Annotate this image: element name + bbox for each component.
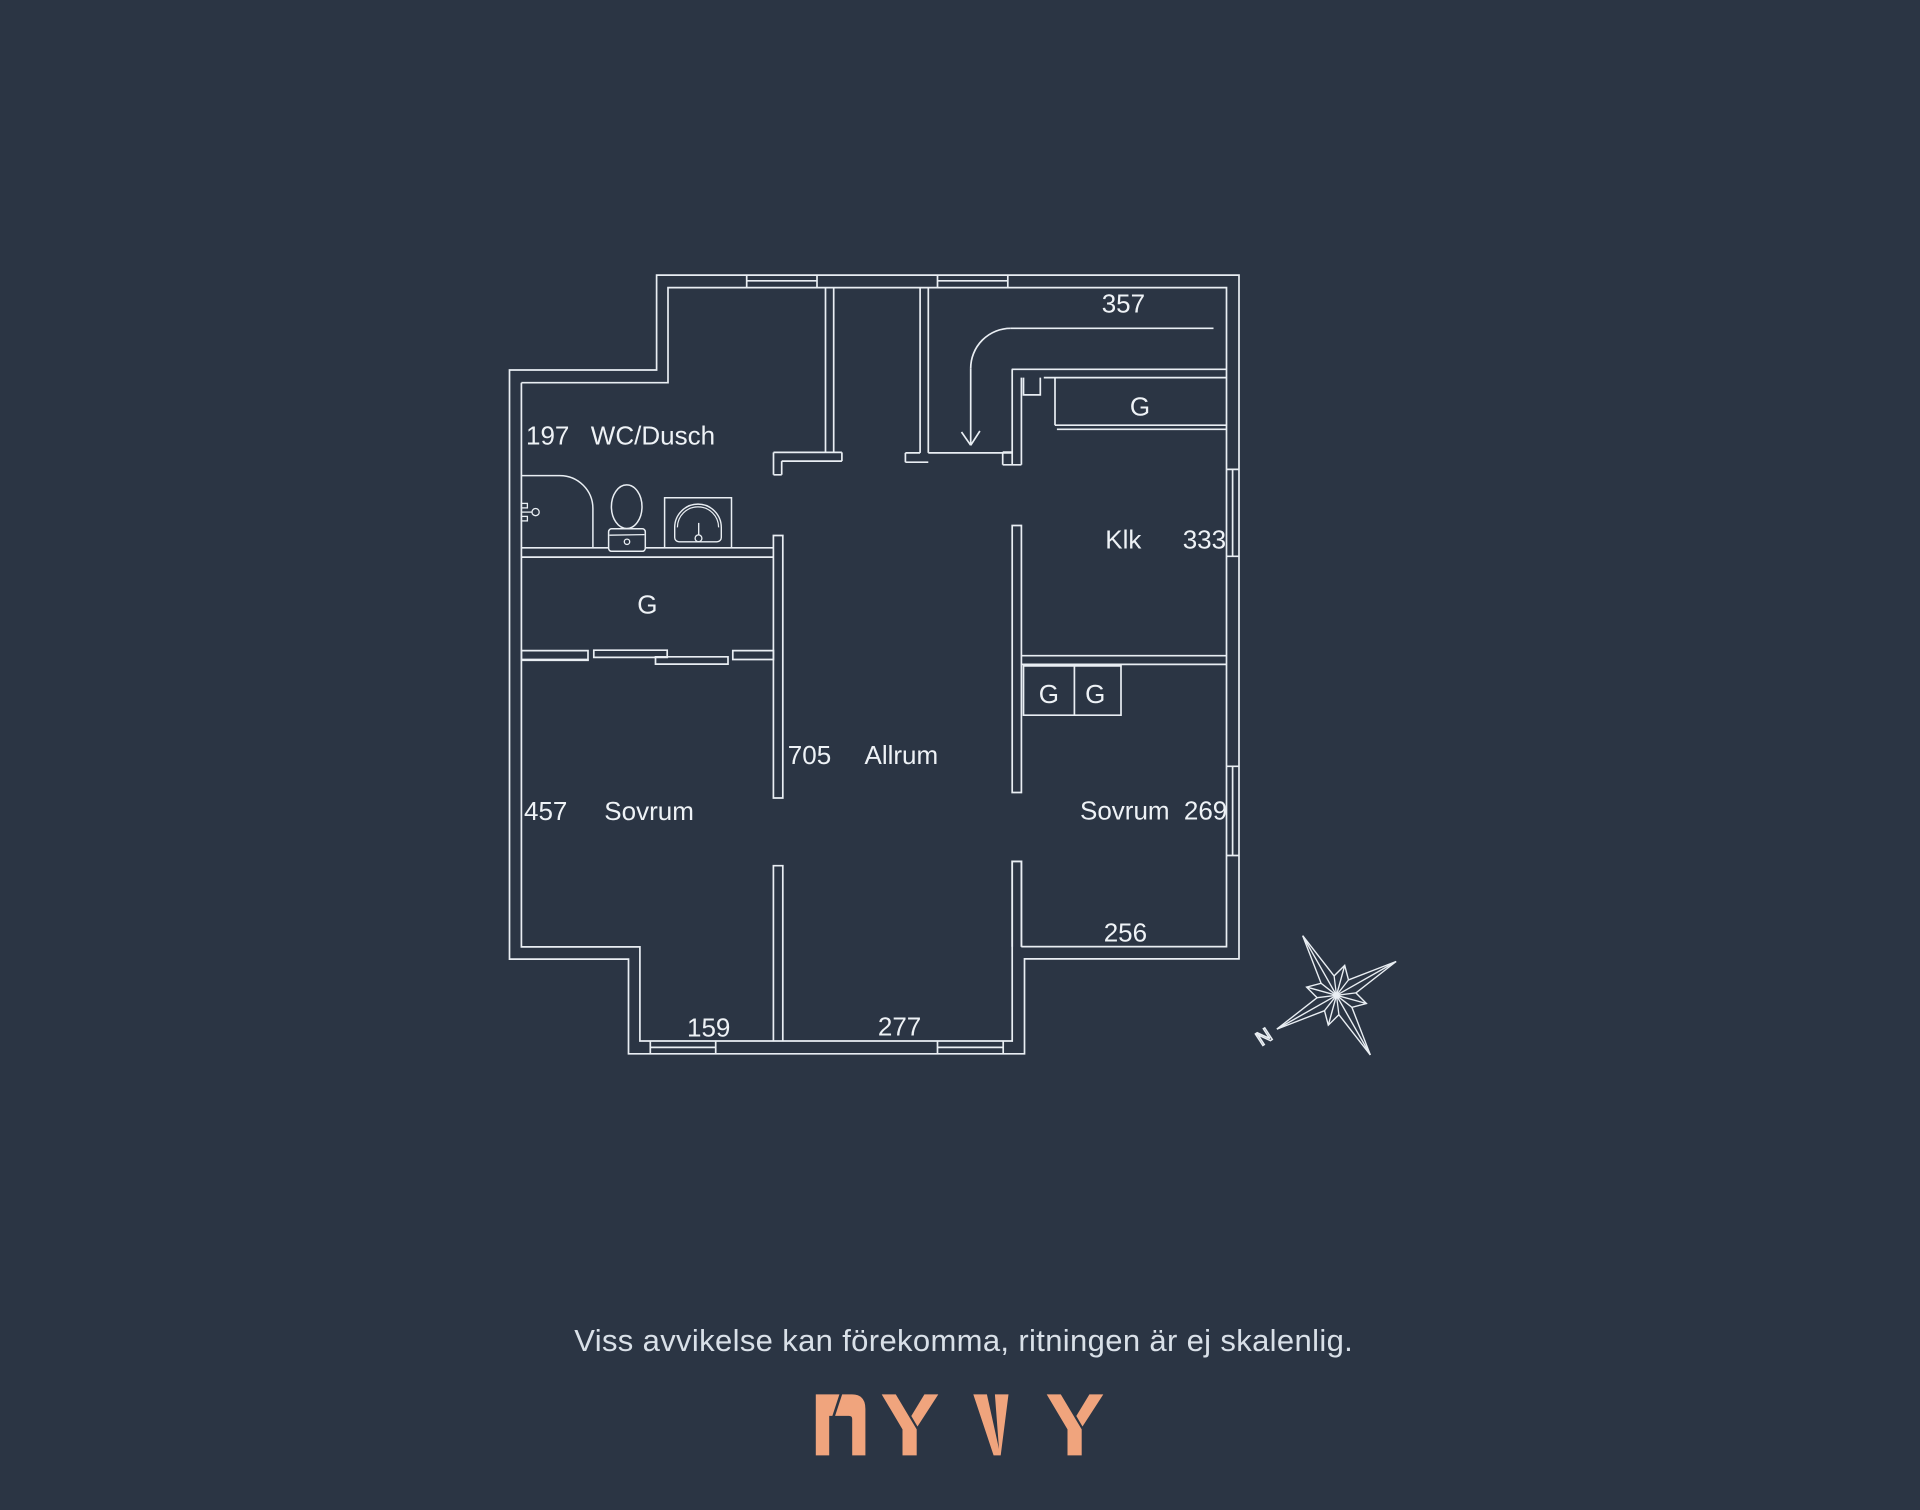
svg-text:Klk: Klk: [1105, 525, 1142, 555]
svg-text:357: 357: [1102, 289, 1145, 319]
svg-text:159: 159: [687, 1013, 730, 1043]
svg-text:Viss avvikelse kan förekomma,: Viss avvikelse kan förekomma, ritningen …: [574, 1323, 1353, 1358]
svg-text:N: N: [1252, 1024, 1276, 1050]
svg-text:G: G: [1130, 392, 1150, 422]
svg-text:277: 277: [878, 1011, 921, 1041]
svg-text:705: 705: [788, 740, 831, 770]
svg-text:256: 256: [1104, 918, 1147, 948]
svg-text:333: 333: [1183, 525, 1226, 555]
svg-text:457: 457: [524, 796, 567, 826]
svg-text:Allrum: Allrum: [865, 740, 939, 770]
svg-text:Sovrum: Sovrum: [1080, 796, 1170, 826]
svg-text:Sovrum: Sovrum: [604, 796, 694, 826]
svg-text:197: 197: [526, 420, 569, 450]
svg-text:G: G: [1039, 679, 1059, 709]
svg-text:269: 269: [1184, 796, 1227, 826]
svg-text:WC/Dusch: WC/Dusch: [591, 420, 715, 450]
svg-text:G: G: [1085, 679, 1105, 709]
svg-text:G: G: [637, 590, 657, 620]
